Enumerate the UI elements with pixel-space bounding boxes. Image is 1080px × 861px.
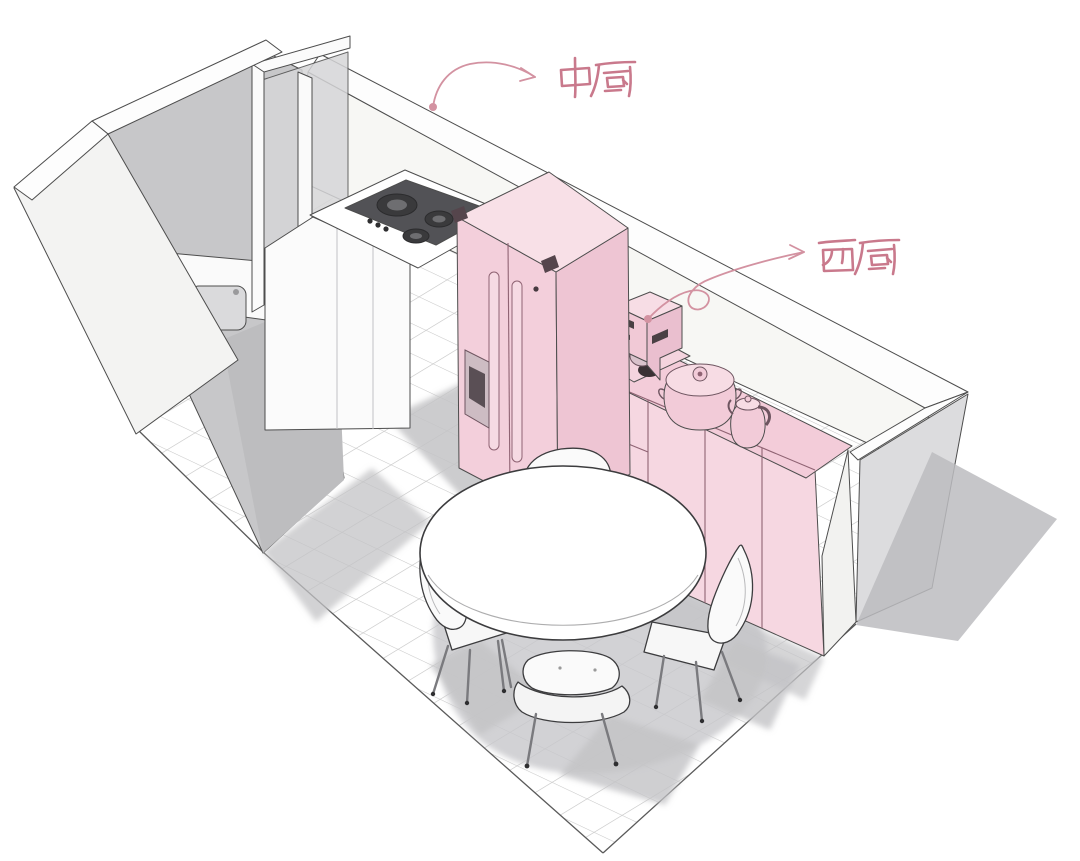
kitchen-rendering: 中厨 西厨 xyxy=(0,0,1080,861)
burner-large-cap xyxy=(387,200,407,211)
table-top xyxy=(420,466,706,640)
chair-foot xyxy=(738,698,742,702)
knob-3 xyxy=(383,226,388,231)
knob-2 xyxy=(375,222,380,227)
burner-small-2-cap xyxy=(410,233,422,239)
chair-seat xyxy=(523,651,619,695)
seat-dot xyxy=(558,666,561,669)
chair-foot xyxy=(431,692,435,696)
chair-foot xyxy=(502,689,506,693)
chair-foot xyxy=(465,701,469,705)
arrow-anchor-dot xyxy=(644,315,652,323)
rice-cooker xyxy=(659,364,742,430)
kitchen-rendering-svg: 中厨 西厨 xyxy=(0,0,1080,861)
knob-1 xyxy=(367,218,372,223)
chair-foot xyxy=(525,764,530,769)
burner-small-1-cap xyxy=(433,216,446,223)
dining-table xyxy=(420,466,706,640)
rice-cooker-knob-dot xyxy=(698,372,703,377)
seat-dot xyxy=(593,668,596,671)
window-frame-left xyxy=(252,58,264,312)
chair-foot xyxy=(614,762,619,767)
kettle-knob xyxy=(745,396,751,402)
faucet-icon xyxy=(233,289,239,295)
arrow-anchor-dot xyxy=(429,103,437,111)
fridge-handle-left xyxy=(489,272,499,450)
chair-foot xyxy=(654,705,658,709)
chair-foot xyxy=(700,719,704,723)
fridge-top-dot xyxy=(533,286,538,291)
fridge-handle-right xyxy=(512,281,522,462)
